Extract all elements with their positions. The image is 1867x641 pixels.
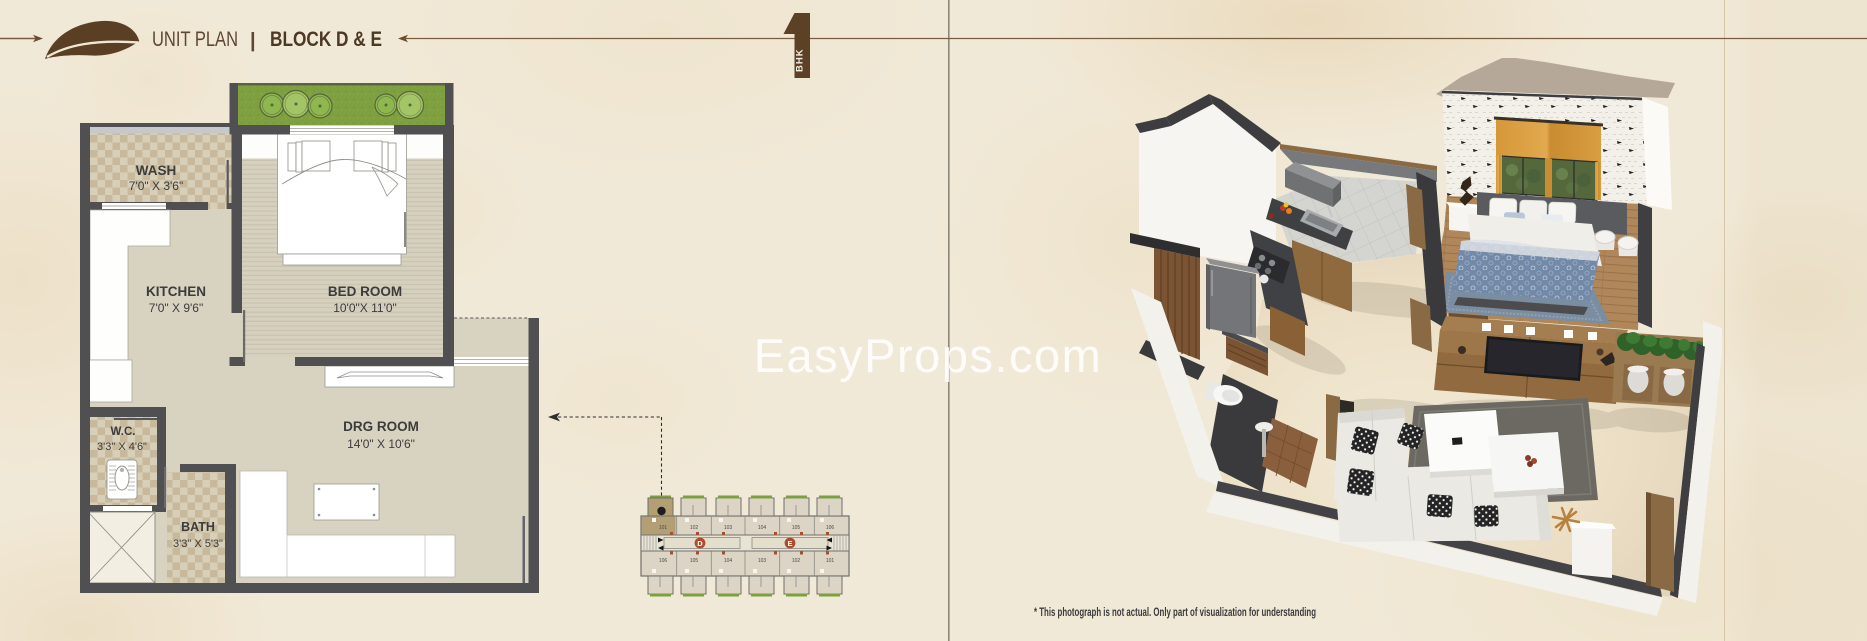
svg-text:102: 102 bbox=[690, 525, 699, 531]
svg-text:106: 106 bbox=[659, 558, 668, 564]
svg-text:W.C.: W.C. bbox=[111, 426, 136, 438]
svg-text:14'0" X 10'6": 14'0" X 10'6" bbox=[347, 437, 415, 451]
svg-text:|: | bbox=[250, 30, 256, 52]
svg-text:104: 104 bbox=[724, 558, 733, 564]
svg-text:104: 104 bbox=[758, 525, 767, 531]
svg-text:3'3" X 5'3": 3'3" X 5'3" bbox=[173, 538, 223, 550]
svg-text:102: 102 bbox=[792, 558, 801, 564]
svg-text:106: 106 bbox=[826, 525, 835, 531]
svg-text:DRG ROOM: DRG ROOM bbox=[343, 419, 419, 434]
svg-text:103: 103 bbox=[724, 525, 733, 531]
svg-text:101: 101 bbox=[659, 525, 668, 531]
svg-text:UNIT PLAN: UNIT PLAN bbox=[152, 28, 238, 51]
svg-text:BATH: BATH bbox=[181, 520, 215, 534]
svg-text:BHK: BHK bbox=[795, 48, 806, 72]
svg-text:103: 103 bbox=[758, 558, 767, 564]
svg-text:* This photograph is not actua: * This photograph is not actual. Only pa… bbox=[1034, 607, 1316, 619]
svg-text:105: 105 bbox=[792, 525, 801, 531]
svg-text:BLOCK D & E: BLOCK D & E bbox=[270, 28, 382, 51]
svg-text:KITCHEN: KITCHEN bbox=[146, 284, 206, 299]
svg-text:101: 101 bbox=[826, 558, 835, 564]
svg-text:EasyProps.com: EasyProps.com bbox=[754, 329, 1103, 382]
svg-text:BED ROOM: BED ROOM bbox=[328, 284, 402, 299]
svg-text:7'0" X 3'6": 7'0" X 3'6" bbox=[129, 179, 183, 193]
svg-text:WASH: WASH bbox=[136, 163, 177, 178]
svg-text:10'0"X 11'0": 10'0"X 11'0" bbox=[333, 301, 397, 315]
svg-text:7'0" X 9'6": 7'0" X 9'6" bbox=[149, 301, 203, 315]
svg-text:3'3" X 4'6": 3'3" X 4'6" bbox=[97, 441, 147, 453]
svg-text:D: D bbox=[697, 539, 703, 548]
svg-text:E: E bbox=[787, 539, 792, 548]
svg-text:105: 105 bbox=[690, 558, 699, 564]
